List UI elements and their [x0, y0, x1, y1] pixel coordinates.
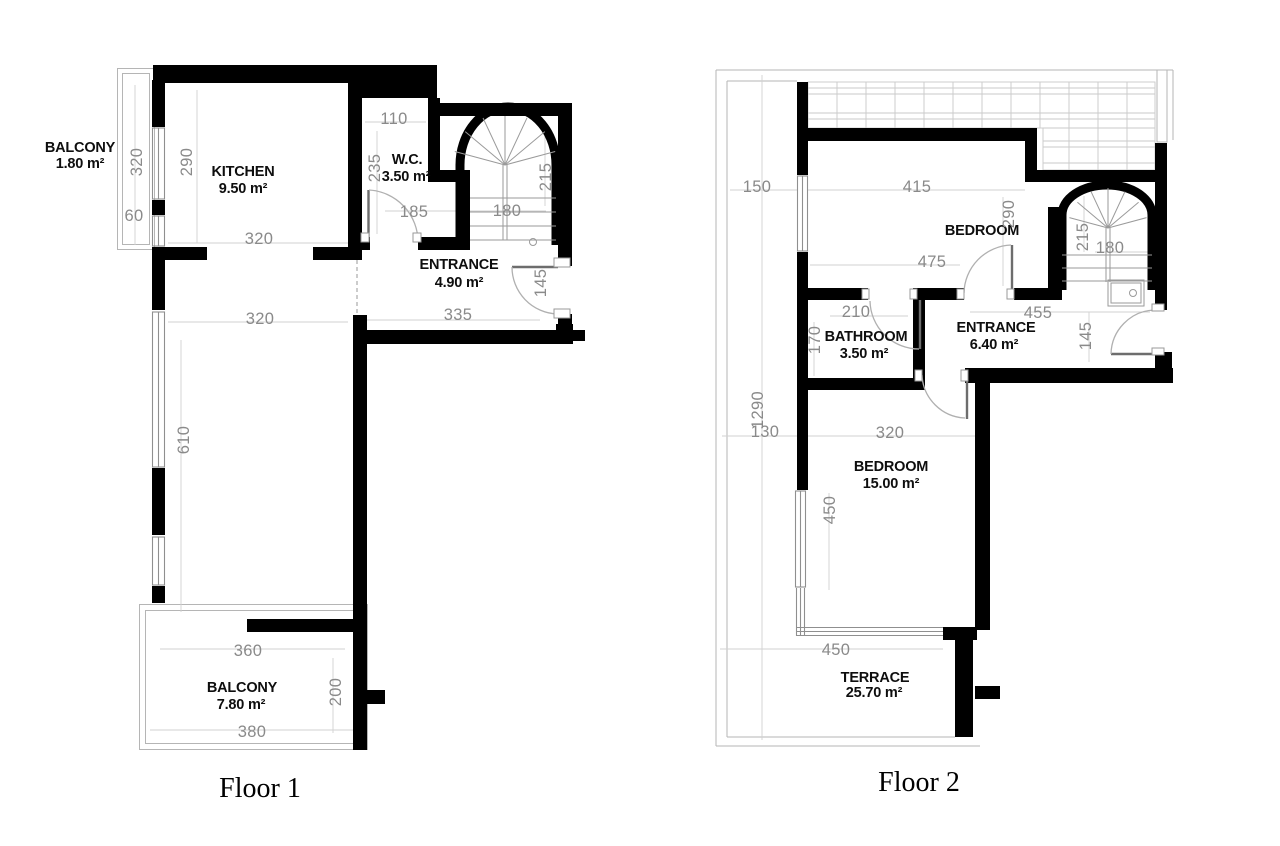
dim-bathroom-depth: 170 — [806, 326, 824, 354]
room-label-entrance-f2: ENTRANCE — [957, 320, 1036, 336]
dim-bedroom1-width: 475 — [918, 253, 946, 271]
floor2-walls — [797, 82, 1173, 737]
room-area-balcony-bottom: 7.80 m² — [217, 697, 266, 713]
dim-wc-top: 110 — [380, 110, 407, 128]
room-label-bathroom: BATHROOM — [825, 329, 908, 345]
dim-left-mid: 130 — [751, 423, 779, 441]
room-area-bathroom: 3.50 m² — [840, 346, 889, 362]
dim-balcony2-top: 360 — [234, 642, 262, 660]
floor-plan-document: BALCONY 1.80 m² KITCHEN 9.50 m² W.C. 3.5… — [0, 0, 1280, 846]
dim-bathroom-top: 210 — [842, 303, 870, 321]
room-label-kitchen: KITCHEN — [211, 164, 274, 180]
bedroom1-door — [957, 245, 1014, 299]
dim-terrace-width: 450 — [822, 641, 850, 659]
room-label-balcony-bottom: BALCONY — [207, 680, 278, 696]
dim-entrance-width-f1: 335 — [444, 306, 472, 324]
floor1-title: Floor 1 — [219, 773, 301, 804]
floor2-pergola-grid — [808, 82, 1155, 170]
floor2-plan: BEDROOM BATHROOM 3.50 m² ENTRANCE 6.40 m… — [716, 70, 1173, 798]
room-label-balcony-top: BALCONY — [45, 140, 116, 156]
dim-bedroom1-depth: 290 — [1000, 200, 1018, 228]
dim-entrance-width-f2: 455 — [1024, 304, 1052, 322]
room-label-terrace: TERRACE — [841, 670, 910, 686]
room-area-entrance-f2: 6.40 m² — [970, 337, 1019, 353]
dim-living-len: 610 — [175, 426, 193, 454]
room-label-bedroom2: BEDROOM — [854, 459, 928, 475]
dim-top-width: 415 — [903, 178, 931, 196]
dim-balcony-wall: 60 — [125, 207, 144, 225]
dim-balcony-len: 320 — [128, 148, 146, 176]
floor-plan-canvas: BALCONY 1.80 m² KITCHEN 9.50 m² W.C. 3.5… — [0, 0, 1280, 846]
room-label-wc: W.C. — [392, 152, 423, 168]
dim-passage-width: 320 — [246, 310, 274, 328]
dim-entry-door-f1: 145 — [532, 269, 550, 297]
floor1-dimension-lines — [135, 85, 546, 733]
dim-stair-width-f1: 180 — [493, 202, 521, 220]
dim-kitchen-depth: 290 — [178, 148, 196, 176]
dim-wc-door-wall: 185 — [400, 203, 428, 221]
room-area-terrace: 25.70 m² — [846, 685, 903, 701]
dim-stair-depth-f1: 215 — [537, 163, 555, 191]
dim-bedroom2-depth: 450 — [821, 496, 839, 524]
dim-left-top: 150 — [743, 178, 771, 196]
floor2-title: Floor 2 — [878, 767, 960, 798]
room-area-balcony-top: 1.80 m² — [56, 156, 105, 172]
room-label-entrance-f1: ENTRANCE — [420, 257, 499, 273]
room-area-bedroom2: 15.00 m² — [863, 476, 920, 492]
dim-wc-depth: 235 — [366, 154, 384, 182]
room-area-wc: 3.50 m² — [382, 169, 431, 185]
dim-entry-door-f2: 145 — [1077, 322, 1095, 350]
floor1-labels: BALCONY 1.80 m² KITCHEN 9.50 m² W.C. 3.5… — [45, 110, 555, 804]
room-area-kitchen: 9.50 m² — [219, 181, 268, 197]
dim-balcony2-depth: 200 — [327, 678, 345, 706]
room-area-entrance-f1: 4.90 m² — [435, 275, 484, 291]
dim-bedroom2-width: 320 — [876, 424, 904, 442]
dim-kitchen-width: 320 — [245, 230, 273, 248]
floor2-windows — [796, 176, 944, 636]
dim-stair-width-f2: 180 — [1096, 239, 1124, 257]
floor1-plan: BALCONY 1.80 m² KITCHEN 9.50 m² W.C. 3.5… — [45, 65, 585, 804]
dim-balcony2-bottom: 380 — [238, 723, 266, 741]
dim-stair-depth-f2: 215 — [1074, 223, 1092, 251]
